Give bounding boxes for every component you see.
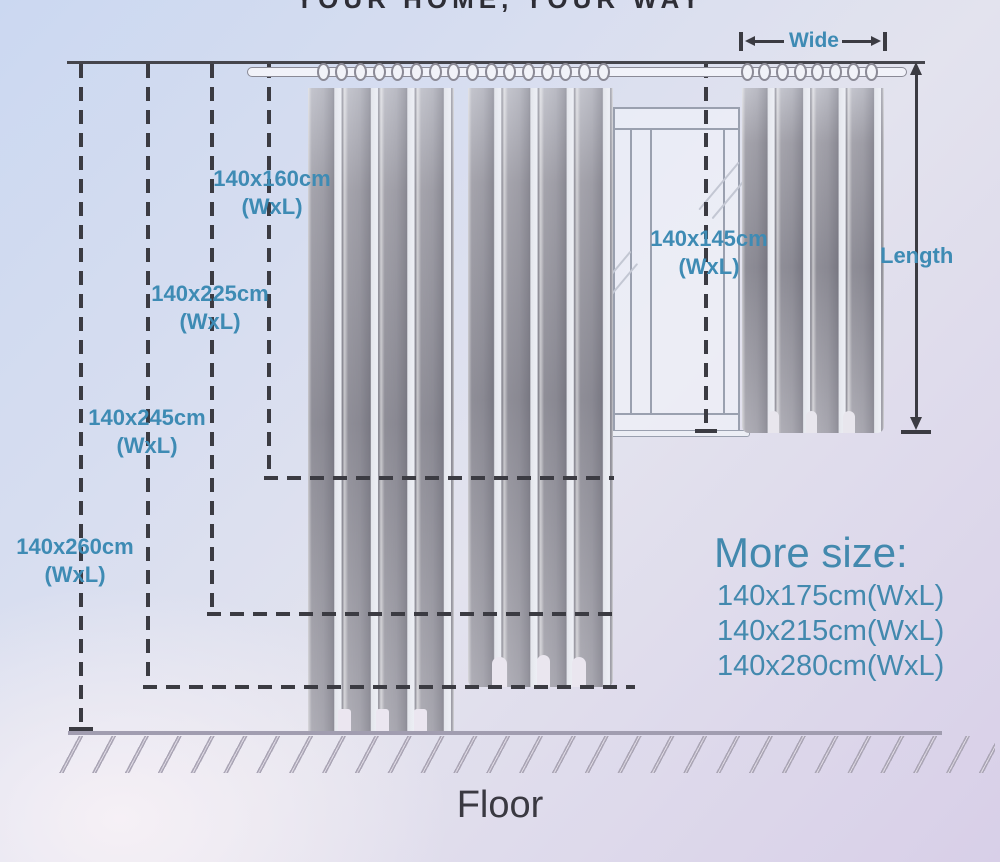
size-value: 140x145cm — [634, 225, 784, 253]
grommet-ring-icon — [597, 63, 610, 81]
window-sill — [600, 430, 750, 437]
grommet-ring-icon — [541, 63, 554, 81]
grommet-ring-icon — [776, 63, 789, 81]
length-arrowhead-down-icon — [910, 417, 922, 430]
dashed-line-160cm-horizontal — [264, 476, 614, 480]
size-suffix: (WxL) — [0, 561, 150, 589]
floor-line — [68, 731, 942, 735]
grommet-ring-icon — [429, 63, 442, 81]
dashed-line-160cm — [267, 64, 271, 479]
grommet-ring-icon — [503, 63, 516, 81]
size-suffix: (WxL) — [72, 432, 222, 460]
length-label: Length — [880, 243, 970, 269]
grommet-ring-icon — [811, 63, 824, 81]
curtain-size-diagram: YOUR HOME, YOUR WAY — [0, 0, 1000, 862]
size-label-260: 140x260cm (WxL) — [0, 533, 150, 589]
grommet-ring-icon — [485, 63, 498, 81]
pleat-notch — [768, 411, 779, 433]
wide-end-bar-left — [739, 32, 743, 51]
grommet-ring-icon — [794, 63, 807, 81]
grommet-ring-icon — [410, 63, 423, 81]
size-suffix: (WxL) — [634, 253, 784, 281]
grommet-ring-icon — [758, 63, 771, 81]
dashed-line-225cm — [210, 64, 214, 615]
curtain-panel-medium-length — [468, 88, 613, 687]
wide-end-bar-right — [883, 32, 887, 51]
grommet-ring-icon — [354, 63, 367, 81]
pleat-notch — [806, 411, 817, 433]
pleat-notch — [338, 709, 351, 733]
size-label-160: 140x160cm (WxL) — [197, 165, 347, 221]
size-suffix: (WxL) — [197, 193, 347, 221]
grommet-ring-icon — [522, 63, 535, 81]
floor-label: Floor — [400, 784, 600, 827]
more-sizes-heading: More size: — [714, 529, 908, 577]
dashed-line-245cm-horizontal — [143, 685, 635, 689]
grommet-ring-icon — [335, 63, 348, 81]
window-bottom-rail — [615, 413, 738, 415]
size-value: 140x245cm — [72, 404, 222, 432]
size-value: 140x160cm — [197, 165, 347, 193]
wide-arrowhead-right-icon — [871, 36, 881, 46]
more-size-item: 140x280cm(WxL) — [717, 650, 944, 683]
size-label-145: 140x145cm (WxL) — [634, 225, 784, 281]
dashed-line-260cm — [79, 64, 83, 729]
floor-hatching — [55, 736, 995, 773]
grommet-ring-icon — [317, 63, 330, 81]
pleat-notch — [843, 411, 855, 433]
more-size-item: 140x175cm(WxL) — [717, 580, 944, 613]
length-end-bar — [901, 430, 931, 434]
wide-label: Wide — [786, 29, 842, 53]
wide-arrow-shaft-right — [842, 40, 873, 43]
grommet-ring-icon — [466, 63, 479, 81]
size-value: 140x225cm — [135, 280, 285, 308]
size-value: 140x260cm — [0, 533, 150, 561]
pleat-notch — [537, 655, 550, 687]
grommet-ring-icon — [829, 63, 842, 81]
size-suffix: (WxL) — [135, 308, 285, 336]
grommet-ring-icon — [847, 63, 860, 81]
grommet-ring-icon — [741, 63, 754, 81]
size-label-225: 140x225cm (WxL) — [135, 280, 285, 336]
tick-145cm-sill — [695, 429, 717, 433]
grommet-ring-icon — [391, 63, 404, 81]
grommet-ring-icon — [865, 63, 878, 81]
grommet-ring-icon — [559, 63, 572, 81]
wide-arrow-shaft-left — [753, 40, 784, 43]
grommet-ring-icon — [447, 63, 460, 81]
pleat-notch — [572, 657, 586, 687]
window-top-rail — [615, 128, 738, 130]
size-label-245: 140x245cm (WxL) — [72, 404, 222, 460]
pleat-notch — [414, 709, 427, 733]
dashed-line-245cm — [146, 64, 150, 688]
pleat-notch — [376, 709, 389, 733]
brand-tagline: YOUR HOME, YOUR WAY — [0, 0, 1000, 14]
dashed-line-225cm-horizontal — [207, 612, 614, 616]
pleat-notch — [492, 657, 507, 687]
grommet-ring-icon — [578, 63, 591, 81]
more-size-item: 140x215cm(WxL) — [717, 615, 944, 648]
grommet-ring-icon — [373, 63, 386, 81]
